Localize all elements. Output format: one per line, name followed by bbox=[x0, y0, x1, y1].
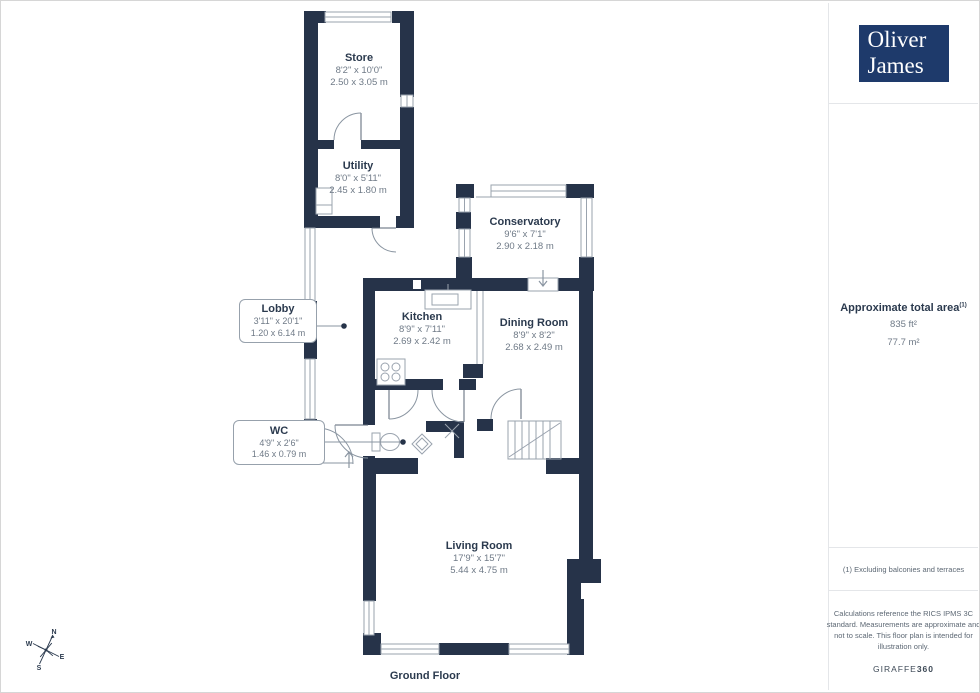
area-title: Approximate total area(1) bbox=[840, 302, 967, 314]
disclaimer-section: Calculations reference the RICS IPMS 3C … bbox=[829, 591, 978, 690]
footnote-text: (1) Excluding balconies and terraces bbox=[843, 565, 964, 574]
floorplan-page: N E S W Store 8'2" x 10'0" 2.50 x 3.05 m… bbox=[0, 0, 980, 693]
info-sidebar: Oliver James Approximate total area(1) 8… bbox=[828, 3, 978, 690]
lobby-callout: Lobby 3'11" x 20'1" 1.20 x 6.14 m bbox=[239, 299, 317, 343]
floor-label: Ground Floor bbox=[390, 670, 460, 682]
room-label-dining-room: Dining Room 8'9" x 8'2" 2.68 x 2.49 m bbox=[500, 317, 568, 354]
area-m-value: 77.7 m² bbox=[887, 335, 919, 350]
room-label-utility: Utility 8'0" x 5'11" 2.45 x 1.80 m bbox=[329, 160, 387, 197]
oliver-james-logo: Oliver James bbox=[859, 25, 949, 82]
room-label-living-room: Living Room 17'9" x 15'7" 5.44 x 4.75 m bbox=[446, 540, 513, 577]
area-footnote-marker: (1) bbox=[959, 302, 966, 308]
room-label-kitchen: Kitchen 8'9" x 7'11" 2.69 x 2.42 m bbox=[393, 311, 451, 348]
room-label-store: Store 8'2" x 10'0" 2.50 x 3.05 m bbox=[330, 52, 388, 89]
giraffe360-logo: GIRAFFE360 bbox=[873, 664, 934, 674]
logo-line-1: Oliver bbox=[868, 27, 949, 53]
total-area-section: Approximate total area(1) 835 ft² 77.7 m… bbox=[829, 104, 978, 548]
room-label-conservatory: Conservatory 9'6" x 7'1" 2.90 x 2.18 m bbox=[490, 216, 561, 253]
logo-line-2: James bbox=[868, 53, 949, 79]
wc-callout: WC 4'9" x 2'6" 1.46 x 0.79 m bbox=[233, 420, 325, 465]
area-ft-value: 835 ft² bbox=[890, 317, 917, 332]
disclaimer-text: Calculations reference the RICS IPMS 3C … bbox=[826, 608, 980, 652]
footnote-section: (1) Excluding balconies and terraces bbox=[829, 548, 978, 591]
logo-section: Oliver James bbox=[829, 3, 978, 104]
